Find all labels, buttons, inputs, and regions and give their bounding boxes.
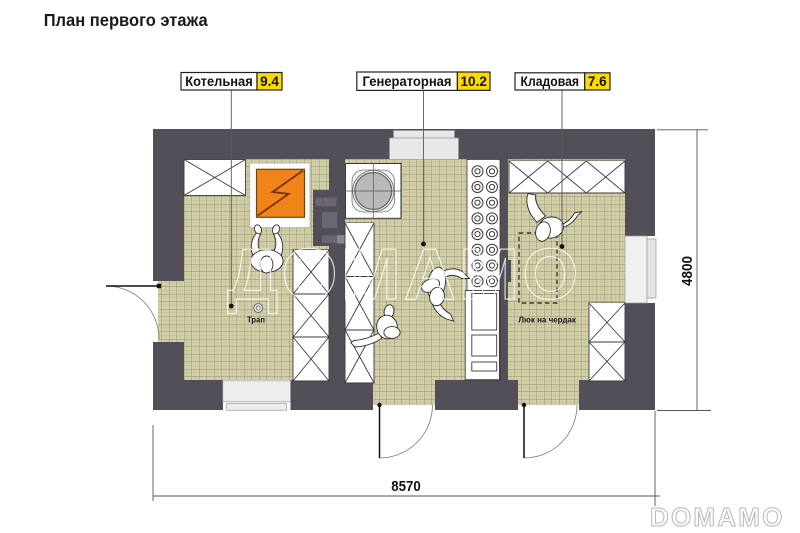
svg-text:Трап: Трап <box>247 315 265 325</box>
svg-text:Котельная: Котельная <box>185 74 253 89</box>
svg-text:8570: 8570 <box>391 478 421 495</box>
svg-text:План первого этажа: План первого этажа <box>44 10 208 30</box>
svg-text:9.4: 9.4 <box>260 74 279 89</box>
svg-text:ДОМАМО: ДОМАМО <box>227 235 581 315</box>
svg-text:4800: 4800 <box>679 256 696 286</box>
svg-text:7.6: 7.6 <box>588 74 607 89</box>
svg-text:Генераторная: Генераторная <box>363 74 452 89</box>
svg-text:Кладовая: Кладовая <box>521 74 580 89</box>
svg-text:10.2: 10.2 <box>461 74 487 89</box>
svg-text:DOMAMO: DOMAMO <box>650 502 785 532</box>
svg-text:Люк на чердак: Люк на чердак <box>518 315 576 325</box>
